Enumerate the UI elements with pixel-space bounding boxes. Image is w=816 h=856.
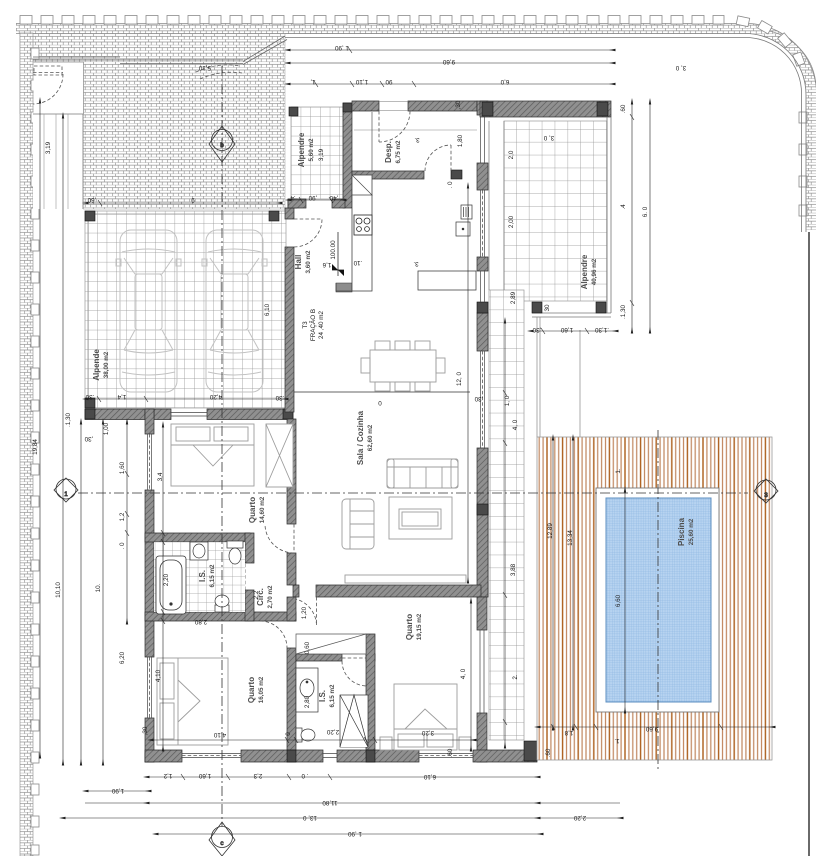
svg-text:13, 0: 13, 0 <box>303 814 318 821</box>
svg-text:13,34: 13,34 <box>567 530 574 546</box>
svg-text:Alpendre: Alpendre <box>297 132 306 167</box>
svg-text:2,3: 2,3 <box>253 772 262 779</box>
svg-text:1,20: 1,20 <box>301 606 308 619</box>
svg-text:16,05 m2: 16,05 m2 <box>258 676 265 703</box>
svg-text:1,00: 1,00 <box>103 422 110 435</box>
svg-text:2,00: 2,00 <box>508 215 515 228</box>
svg-text:.30: .30 <box>275 394 284 401</box>
svg-text:6,75 m2: 6,75 m2 <box>395 140 402 164</box>
svg-text:19,84: 19,84 <box>32 439 39 455</box>
svg-text:4, 0: 4, 0 <box>460 668 467 679</box>
svg-text:6,20: 6,20 <box>119 651 126 664</box>
svg-text:c: c <box>220 840 223 847</box>
svg-text:. 0: . 0 <box>447 181 454 188</box>
svg-text:Piscina: Piscina <box>677 517 686 546</box>
svg-text:Sala / Cozinha: Sala / Cozinha <box>356 410 365 465</box>
svg-text:9,60: 9,60 <box>645 725 658 732</box>
svg-text:,90: ,90 <box>308 194 317 201</box>
svg-text:10,10: 10,10 <box>55 582 62 598</box>
svg-text:2,89: 2,89 <box>510 291 517 304</box>
svg-text:5,60 m2: 5,60 m2 <box>308 138 315 162</box>
svg-text:24 ,40 m2: 24 ,40 m2 <box>318 311 325 340</box>
svg-text:,30: ,30 <box>532 326 541 333</box>
svg-text:4,10: 4,10 <box>155 669 162 682</box>
svg-text:2,80: 2,80 <box>304 695 311 708</box>
svg-text:Alpende: Alpende <box>92 349 101 381</box>
svg-text:3,20: 3,20 <box>421 729 434 736</box>
svg-text:1,8: 1,8 <box>564 729 573 736</box>
svg-text:3,19: 3,19 <box>45 141 52 154</box>
svg-text:b: b <box>220 142 224 149</box>
svg-text:0,60: 0,60 <box>304 641 311 654</box>
svg-text:10.: 10. <box>95 583 102 592</box>
svg-text:62,60 m2: 62,60 m2 <box>367 424 374 451</box>
svg-text:.1,30: .1,30 <box>595 326 610 333</box>
svg-text:9,60: 9,60 <box>442 58 455 65</box>
svg-text:1,60: 1,60 <box>560 326 573 333</box>
svg-text:3,19: 3,19 <box>318 148 325 161</box>
svg-text:3,4: 3,4 <box>157 472 164 481</box>
svg-text:Quarto: Quarto <box>247 677 256 703</box>
svg-text:6,60: 6,60 <box>615 594 622 607</box>
svg-text:12,89: 12,89 <box>547 523 554 539</box>
svg-text:.4: .4 <box>290 194 296 201</box>
svg-text:I.S.: I.S. <box>198 570 207 582</box>
svg-text:2,0: 2,0 <box>508 150 515 159</box>
svg-text:2,20: 2,20 <box>573 814 586 821</box>
svg-text:9: 9 <box>191 196 195 203</box>
svg-text:1.: 1. <box>615 468 622 474</box>
svg-text:30: 30 <box>544 304 551 312</box>
svg-text:3: 3 <box>764 492 768 499</box>
svg-text:6,10: 6,10 <box>423 773 436 780</box>
svg-text:1,80: 1,80 <box>457 134 464 147</box>
svg-text:5,10: 5,10 <box>198 64 211 71</box>
svg-text:,60: ,60 <box>87 196 96 203</box>
svg-text:1,2: 1,2 <box>163 772 172 779</box>
svg-text:6,0: 6,0 <box>500 78 509 85</box>
svg-text:1,10: 1,10 <box>355 78 368 85</box>
svg-text:1,60: 1,60 <box>198 772 211 779</box>
svg-text:2,20: 2,20 <box>163 573 170 586</box>
svg-text:,30: ,30 <box>142 726 149 735</box>
svg-text:2,20: 2,20 <box>326 728 339 735</box>
svg-text:2.: 2. <box>512 674 519 680</box>
svg-text:Hall: Hall <box>294 255 303 270</box>
svg-text:40,96 m2: 40,96 m2 <box>591 258 598 285</box>
svg-text:12, 0: 12, 0 <box>456 372 463 387</box>
svg-text:.60: .60 <box>620 104 627 113</box>
svg-text:19,15 m2: 19,15 m2 <box>416 613 423 640</box>
svg-text:,40: ,40 <box>329 194 338 201</box>
svg-text:6,10: 6,10 <box>264 303 271 316</box>
svg-text:,30: ,30 <box>84 435 93 442</box>
svg-text:1 ,90: 1 ,90 <box>348 830 363 837</box>
svg-text:3,88: 3,88 <box>510 563 517 576</box>
svg-text:Alpendre: Alpendre <box>580 254 589 289</box>
svg-text:.10: .10 <box>353 259 362 266</box>
svg-text:100.00: 100.00 <box>330 240 337 260</box>
svg-text:0: 0 <box>378 399 382 406</box>
svg-text:6,15 m2: 6,15 m2 <box>209 564 216 588</box>
svg-text:. 0: . 0 <box>301 772 308 779</box>
svg-text:.60: .60 <box>545 748 552 757</box>
svg-text:.30: .30 <box>85 393 94 400</box>
svg-text:3.: 3. <box>414 136 420 143</box>
svg-text:1,60: 1,60 <box>119 461 126 474</box>
svg-text:Desp.: Desp. <box>384 141 393 163</box>
svg-text:11,80: 11,80 <box>322 799 338 806</box>
svg-text:1,2: 1,2 <box>119 512 126 521</box>
svg-text:14,60 m2: 14,60 m2 <box>259 496 266 523</box>
svg-text:. 0: . 0 <box>119 542 126 549</box>
svg-text:T3: T3 <box>302 321 309 329</box>
svg-text:1.: 1. <box>614 737 620 744</box>
svg-text:.1,30: .1,30 <box>620 305 627 320</box>
svg-text:3, 0: 3, 0 <box>675 64 686 71</box>
svg-text:4,10: 4,10 <box>213 731 226 738</box>
svg-text:Quarto: Quarto <box>405 614 414 640</box>
svg-text:6,15 m2: 6,15 m2 <box>329 684 336 708</box>
svg-text:90: 90 <box>385 78 393 85</box>
svg-text:4,20: 4,20 <box>209 393 222 400</box>
svg-text:2,2: 2,2 <box>253 590 260 599</box>
svg-text:1,6: 1,6 <box>322 261 331 268</box>
svg-text:.4: .4 <box>620 204 627 210</box>
svg-text:1: 1 <box>64 491 68 498</box>
svg-text:Quarto: Quarto <box>248 497 257 523</box>
svg-text:1,4: 1,4 <box>117 393 126 400</box>
svg-text:.60: .60 <box>447 748 454 757</box>
svg-text:I.S.: I.S. <box>318 690 327 702</box>
svg-text:1,90: 1,90 <box>111 787 124 794</box>
svg-text:2,80: 2,80 <box>194 618 207 625</box>
svg-text:FRAÇÃO B: FRAÇÃO B <box>308 309 317 341</box>
svg-text:3.: 3. <box>413 260 419 267</box>
svg-text:6. 0: 6. 0 <box>642 206 649 217</box>
svg-text:1,: 1, <box>310 78 316 85</box>
svg-text:3, 0: 3, 0 <box>543 134 554 141</box>
svg-text:2,70 m2: 2,70 m2 <box>267 585 274 609</box>
svg-text:3,60 m2: 3,60 m2 <box>305 250 312 274</box>
svg-text:25,60 m2: 25,60 m2 <box>688 518 695 545</box>
svg-text:1 ,90: 1 ,90 <box>335 44 350 51</box>
svg-text:1, 0: 1, 0 <box>504 395 511 406</box>
svg-text:4, 0: 4, 0 <box>512 419 519 430</box>
svg-text:,30: ,30 <box>474 395 483 402</box>
svg-text:.1,30: .1,30 <box>65 413 72 428</box>
svg-text:0: 0 <box>285 732 292 736</box>
svg-text:38,00 m2: 38,00 m2 <box>103 351 110 378</box>
svg-text:,30: ,30 <box>455 100 462 109</box>
